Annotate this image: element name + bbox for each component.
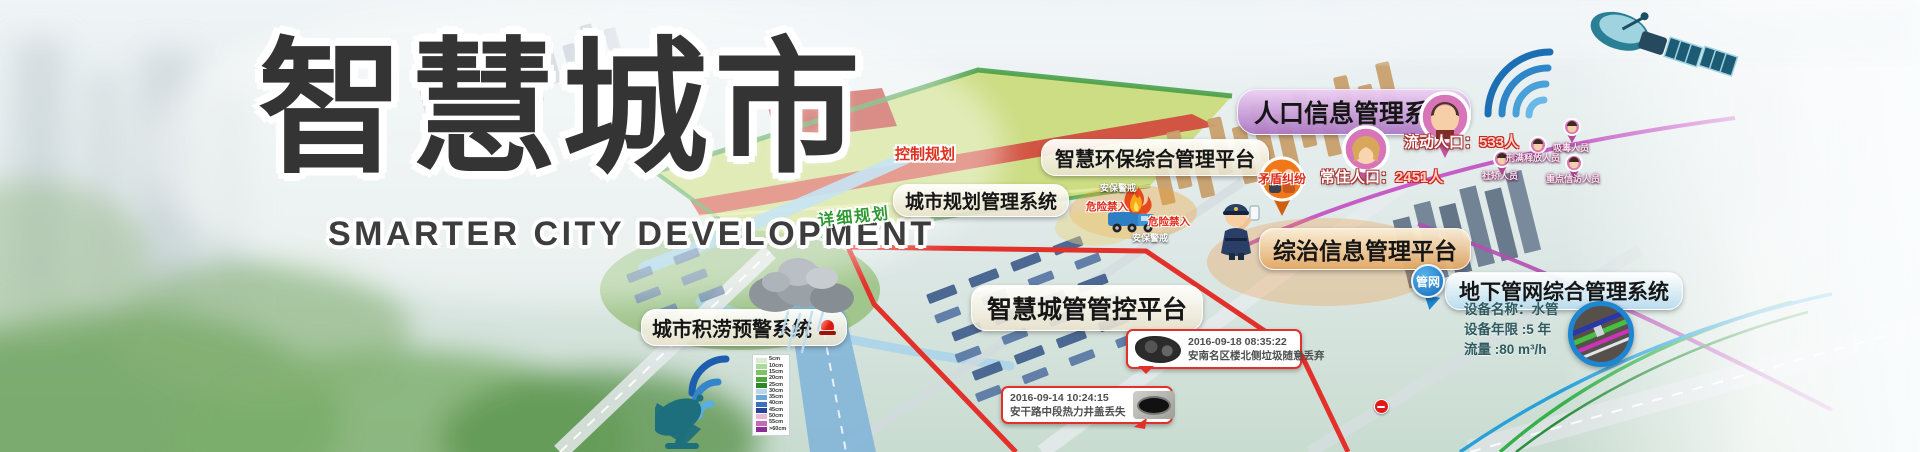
- rain-cloud-icon: [730, 242, 860, 362]
- satellite-signal-icon: [1462, 42, 1572, 122]
- incident-time: 2016-09-14 10:24:15: [1010, 391, 1126, 405]
- flood-depth-legend: 5cm 10cm 15cm 20cm 25cm 30cm 35cm 40cm 4…: [752, 354, 790, 436]
- cordon-tag: 安保警戒: [1132, 231, 1168, 244]
- focus-group-label: 社矫人员: [1482, 169, 1518, 182]
- manhole-photo: [1133, 391, 1175, 419]
- cordon-tag: 安保警戒: [1100, 181, 1136, 194]
- policeman-icon: [1216, 198, 1264, 260]
- resident-population-label: 常住人口：2451人: [1320, 166, 1443, 187]
- focus-group-label: 刑满释放人员: [1506, 151, 1560, 164]
- incident-card-garbage: 2016-09-18 08:35:22 安南名区楼北侧垃圾随意丢弃: [1126, 329, 1302, 369]
- no-entry-tag: 危险禁入: [1086, 199, 1128, 214]
- pipe-flow: 流量 :80 m³/h: [1464, 340, 1559, 360]
- incident-time: 2016-09-18 08:35:22: [1188, 335, 1325, 349]
- pipe-magnifier: [1568, 301, 1634, 367]
- smart-city-banner: 智慧城市 SMARTER CITY DEVELOPMENT 城市规划管理系统 智: [0, 0, 1920, 452]
- dispute-label: 矛盾纠纷: [1258, 170, 1306, 187]
- incident-card-manhole: 2016-09-14 10:24:15 安干路中段热力井盖丢失: [1001, 386, 1173, 424]
- pin-dispute: [1258, 156, 1306, 218]
- label-city-planning-system: 城市规划管理系统: [893, 184, 1069, 217]
- label-text: 智慧城管管控平台: [987, 290, 1187, 326]
- label-environment-platform: 智慧环保综合管理平台: [1041, 139, 1269, 176]
- label-text: 综治信息管理平台: [1273, 232, 1457, 266]
- no-entry-tag: 危险禁入: [1148, 214, 1190, 229]
- incident-desc: 安南名区楼北侧垃圾随意丢弃: [1188, 349, 1325, 363]
- pipe-info-block: 设备名称：水管 设备年限 :5 年 流量 :80 m³/h: [1464, 300, 1559, 360]
- radar-dish-icon: [655, 345, 745, 450]
- label-text: 城市规划管理系统: [905, 187, 1057, 214]
- pipe-device-name: 设备名称：水管: [1464, 300, 1559, 320]
- incident-desc: 安干路中段热力井盖丢失: [1010, 405, 1126, 419]
- tag-control-plan: 控制规划: [895, 143, 955, 164]
- pipe-device-age: 设备年限 :5 年: [1464, 320, 1559, 340]
- banner-title: 智慧城市: [258, 30, 866, 188]
- callout-tail: [1138, 366, 1154, 382]
- focus-group-label: 重点信访人员: [1546, 172, 1600, 185]
- no-entry-sign-icon: [1374, 399, 1389, 414]
- garbage-photo: [1135, 336, 1181, 363]
- label-governance-platform: 综治信息管理平台: [1259, 228, 1471, 270]
- badge-pipe-network: 管网: [1411, 264, 1445, 298]
- floating-population-label: 流动人口：533人: [1404, 131, 1519, 152]
- label-text: 智慧环保综合管理平台: [1055, 143, 1255, 172]
- label-city-mgmt-platform: 智慧城管管控平台: [971, 285, 1203, 331]
